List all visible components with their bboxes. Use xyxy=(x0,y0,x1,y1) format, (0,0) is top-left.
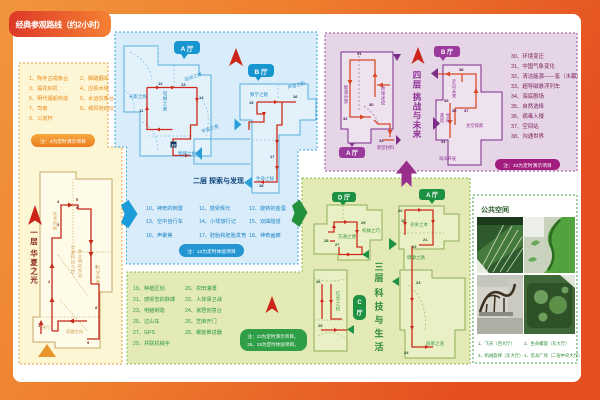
svg-text:一层: 一层 xyxy=(30,228,38,246)
svg-text:居家之道: 居家之道 xyxy=(426,340,444,347)
svg-text:健康之路: 健康之路 xyxy=(407,254,425,261)
svg-text:16、声聚焦: 16、声聚焦 xyxy=(146,231,173,239)
svg-text:D 厅: D 厅 xyxy=(338,194,350,202)
svg-text:23: 23 xyxy=(416,280,421,285)
svg-text:36、病毒入侵: 36、病毒入侵 xyxy=(511,112,545,120)
svg-text:A 厅: A 厅 xyxy=(181,45,194,53)
svg-text:17: 17 xyxy=(270,154,275,159)
svg-text:37: 37 xyxy=(464,108,469,113)
svg-text:7、司南: 7、司南 xyxy=(29,104,47,112)
svg-text:17、胚胎和胚胎发育: 17、胚胎和胚胎发育 xyxy=(199,231,246,239)
svg-text:四层: 四层 xyxy=(412,70,422,89)
svg-text:14: 14 xyxy=(199,95,204,100)
svg-text:34、海底剧场: 34、海底剧场 xyxy=(511,92,545,100)
svg-text:走向未来: 走向未来 xyxy=(452,79,457,100)
svg-text:37、空间站: 37、空间站 xyxy=(511,122,539,130)
svg-text:注：3为定时演示项目: 注：3为定时演示项目 xyxy=(40,138,86,145)
svg-text:注：33为定时演示项目: 注：33为定时演示项目 xyxy=(503,162,552,169)
svg-text:22: 22 xyxy=(412,244,417,249)
svg-text:19、种植区划: 19、种植区划 xyxy=(133,284,165,292)
svg-text:29、并联机械手: 29、并联机械手 xyxy=(133,339,170,347)
svg-text:15: 15 xyxy=(249,100,254,105)
svg-text:27: 27 xyxy=(335,242,340,247)
svg-text:33: 33 xyxy=(379,138,384,143)
svg-text:33、超导磁悬浮列车: 33、超导磁悬浮列车 xyxy=(511,82,561,90)
svg-text:2、脚踏翻车: 2、脚踏翻车 xyxy=(80,74,109,82)
svg-text:20: 20 xyxy=(398,208,403,213)
svg-text:35: 35 xyxy=(444,98,449,103)
svg-text:38、沟通世界: 38、沟通世界 xyxy=(511,132,545,140)
svg-text:28: 28 xyxy=(324,238,329,243)
svg-text:A 厅: A 厅 xyxy=(346,149,358,157)
svg-text:26、芝麻开门: 26、芝麻开门 xyxy=(185,317,217,325)
svg-text:25、过山车: 25、过山车 xyxy=(133,317,160,325)
svg-text:1、飞天（西大厅）: 1、飞天（西大厅） xyxy=(478,340,515,347)
svg-text:三层: 三层 xyxy=(374,262,383,283)
svg-text:14、小球旅行记: 14、小球旅行记 xyxy=(199,217,236,225)
svg-text:挑战与未来: 挑战与未来 xyxy=(412,92,422,139)
svg-text:32、清洁能源——氢（水幕）: 32、清洁能源——氢（水幕） xyxy=(511,72,582,80)
svg-text:25: 25 xyxy=(318,323,323,328)
svg-text:华夏之光: 华夏之光 xyxy=(29,248,38,284)
svg-text:厅: 厅 xyxy=(356,309,362,317)
svg-text:36: 36 xyxy=(452,108,457,113)
svg-text:30、环境变迁: 30、环境变迁 xyxy=(511,52,545,60)
svg-text:21、感受您的脉搏: 21、感受您的脉搏 xyxy=(133,295,175,303)
svg-text:光影之绚: 光影之绚 xyxy=(129,93,147,100)
svg-text:农食之本: 农食之本 xyxy=(410,221,428,228)
svg-text:24、家居创意台: 24、家居创意台 xyxy=(185,306,222,314)
svg-text:2、生命螺旋（东大厅）: 2、生命螺旋（东大厅） xyxy=(524,340,569,347)
svg-text:序厅: 序厅 xyxy=(42,324,50,331)
svg-text:二层 探索与发现: 二层 探索与发现 xyxy=(193,176,244,185)
svg-text:21: 21 xyxy=(423,237,428,242)
svg-text:生命之秘: 生命之秘 xyxy=(256,175,274,182)
svg-text:注：23为定时演示项目，: 注：23为定时演示项目， xyxy=(247,333,298,340)
svg-text:12: 12 xyxy=(158,81,163,86)
svg-text:15、双曲隧道: 15、双曲隧道 xyxy=(249,217,281,225)
svg-text:交通之便: 交通之便 xyxy=(338,233,356,240)
svg-text:地球述说: 地球述说 xyxy=(381,85,386,107)
svg-text:31、中国气象变化: 31、中国气象变化 xyxy=(511,62,555,70)
svg-text:13、空中自行车: 13、空中自行车 xyxy=(146,217,183,225)
svg-text:保健空间: 保健空间 xyxy=(66,328,83,335)
svg-text:C: C xyxy=(357,300,362,306)
svg-text:4、应县木塔: 4、应县木塔 xyxy=(80,84,110,92)
svg-text:30: 30 xyxy=(369,102,374,107)
svg-text:注：13为定时体验项目: 注：13为定时体验项目 xyxy=(187,248,236,255)
svg-text:10、神奇的倒置: 10、神奇的倒置 xyxy=(146,204,183,212)
svg-text:经典参观路线（约2小时）: 经典参观路线（约2小时） xyxy=(16,20,105,30)
svg-text:12、旋转的金蛋: 12、旋转的金蛋 xyxy=(249,204,286,212)
svg-text:10: 10 xyxy=(171,142,176,147)
svg-text:25、28为定时体验项目。: 25、28为定时体验项目。 xyxy=(247,341,299,348)
svg-text:19: 19 xyxy=(401,218,406,223)
svg-text:公共空间: 公共空间 xyxy=(481,205,509,214)
svg-text:9、公道杯: 9、公道杯 xyxy=(29,114,53,122)
svg-text:8、候风地动仪: 8、候风地动仪 xyxy=(80,104,114,112)
svg-text:3、机械旋律（东大厅）: 3、机械旋律（东大厅） xyxy=(478,352,523,359)
svg-text:38: 38 xyxy=(459,67,464,72)
svg-text:18、神奇画廊: 18、神奇画廊 xyxy=(249,231,281,239)
svg-text:4、恐龙广场（二层中央大厅）: 4、恐龙广场（二层中央大厅） xyxy=(524,352,582,359)
svg-text:28、螺旋推进器: 28、螺旋推进器 xyxy=(185,328,223,336)
svg-text:信息之桥: 信息之桥 xyxy=(336,290,341,312)
svg-text:26: 26 xyxy=(316,279,321,284)
svg-text:32: 32 xyxy=(343,116,348,121)
svg-text:物理之妙: 物理之妙 xyxy=(178,150,196,157)
svg-text:13: 13 xyxy=(181,82,186,87)
svg-text:能源世界: 能源世界 xyxy=(344,84,349,106)
svg-text:A 厅: A 厅 xyxy=(426,191,438,199)
svg-text:35、自然选择: 35、自然选择 xyxy=(511,102,545,110)
svg-text:海洋开发: 海洋开发 xyxy=(439,155,457,162)
svg-text:生命: 生命 xyxy=(446,112,451,124)
svg-text:20、农田灌溉: 20、农田灌溉 xyxy=(185,284,217,292)
svg-text:27、GPS: 27、GPS xyxy=(133,330,155,336)
svg-text:34: 34 xyxy=(441,139,446,144)
svg-text:新型材料: 新型材料 xyxy=(377,144,395,151)
svg-text:11、感受辉光: 11、感受辉光 xyxy=(199,204,230,212)
svg-text:数学之魅: 数学之魅 xyxy=(250,91,268,98)
svg-text:基因: 基因 xyxy=(440,112,445,124)
svg-text:科技与生活: 科技与生活 xyxy=(374,287,384,352)
svg-text:B 厅: B 厅 xyxy=(441,48,453,56)
svg-text:3、提花织机: 3、提花织机 xyxy=(29,84,59,92)
svg-text:16: 16 xyxy=(293,94,298,99)
svg-text:B 厅: B 厅 xyxy=(255,68,269,76)
svg-text:22、人体保卫战: 22、人体保卫战 xyxy=(185,295,223,303)
svg-text:太空探索: 太空探索 xyxy=(466,122,484,129)
svg-text:31: 31 xyxy=(357,51,362,56)
svg-text:1、陶寺古观象台: 1、陶寺古观象台 xyxy=(29,74,68,82)
svg-text:24: 24 xyxy=(404,350,409,355)
svg-text:6、水运仪象台: 6、水运仪象台 xyxy=(80,94,114,102)
svg-text:29: 29 xyxy=(361,220,366,225)
svg-text:23、电脑制造: 23、电脑制造 xyxy=(133,306,166,314)
svg-text:5、明代福船构造: 5、明代福船构造 xyxy=(29,94,69,102)
svg-text:机械之巧: 机械之巧 xyxy=(362,227,380,234)
svg-text:电磁之奥: 电磁之奥 xyxy=(163,90,168,112)
svg-text:18: 18 xyxy=(259,183,264,188)
